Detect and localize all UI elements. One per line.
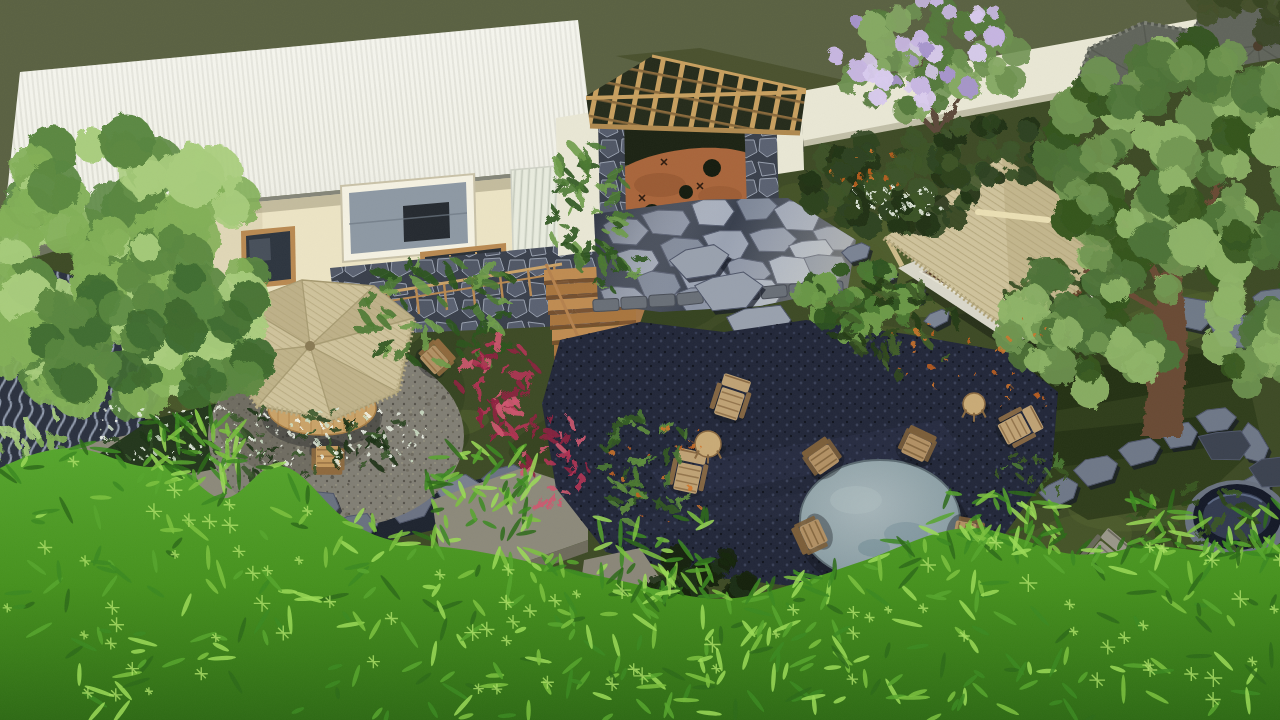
film-grain-overlay [0, 0, 1280, 720]
garden-render [0, 0, 1280, 720]
garden-render-canvas [0, 0, 1280, 720]
